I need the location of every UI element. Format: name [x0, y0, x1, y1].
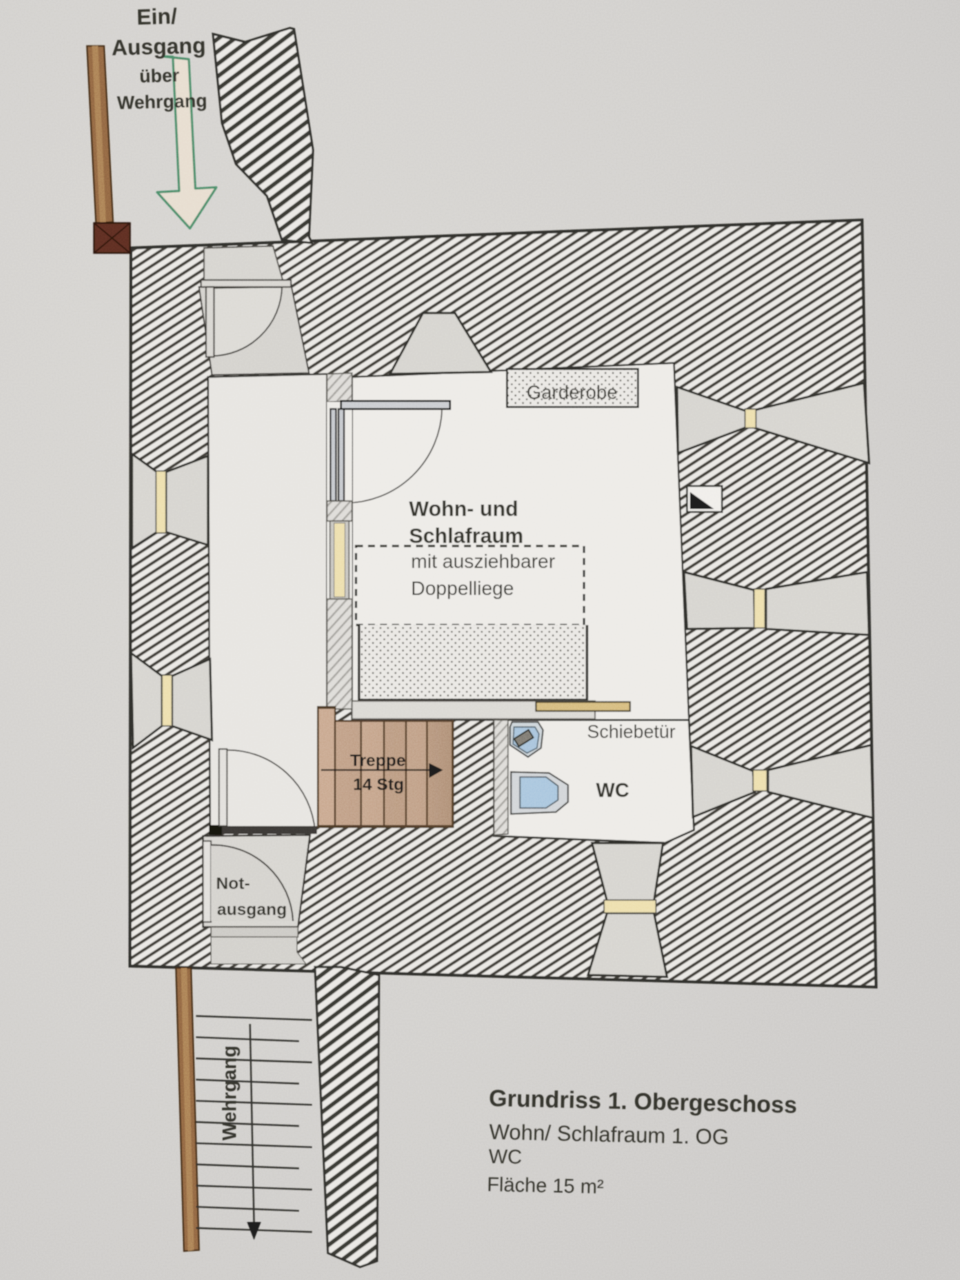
svg-text:über: über — [139, 64, 180, 86]
svg-text:Wohn- und: Wohn- und — [409, 498, 518, 521]
svg-text:Wehrgang: Wehrgang — [117, 90, 208, 113]
svg-text:ausgang: ausgang — [217, 900, 287, 919]
svg-text:Schiebetür: Schiebetür — [587, 721, 675, 742]
svg-text:Ausgang: Ausgang — [111, 33, 206, 60]
svg-text:14 Stg: 14 Stg — [353, 775, 404, 794]
svg-text:Garderobe: Garderobe — [527, 383, 618, 404]
svg-text:Ein/: Ein/ — [136, 4, 177, 30]
svg-text:Fläche 15 m²: Fläche 15 m² — [487, 1174, 605, 1199]
svg-text:Treppe: Treppe — [350, 751, 406, 770]
svg-text:mit ausziehbarer: mit ausziehbarer — [411, 551, 556, 573]
svg-text:Not-: Not- — [216, 874, 250, 893]
svg-text:Doppelliege: Doppelliege — [411, 578, 514, 600]
svg-text:Wehrgang: Wehrgang — [219, 1046, 241, 1141]
svg-text:WC: WC — [488, 1146, 522, 1169]
svg-text:WC: WC — [596, 780, 629, 802]
svg-text:Schlafraum: Schlafraum — [409, 525, 523, 548]
